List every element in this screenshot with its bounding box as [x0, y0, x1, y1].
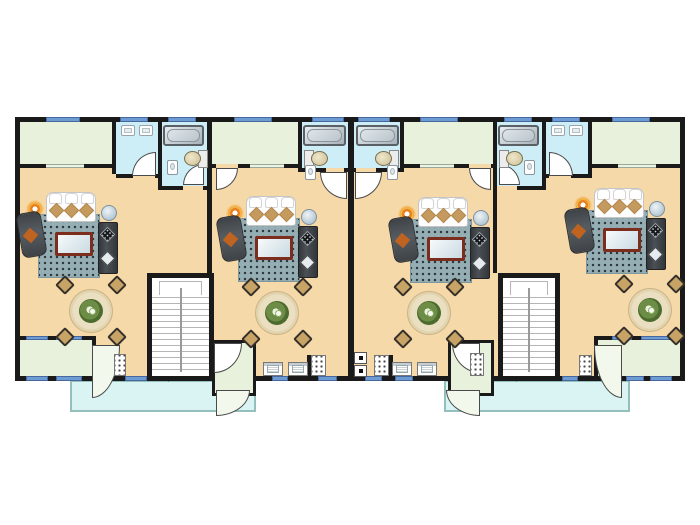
kitchen-appliance-2: [288, 362, 308, 376]
window-4: [312, 117, 344, 122]
pedestal-sink-3: [387, 165, 398, 180]
dining-set-4-c-sw: [614, 326, 634, 346]
door-arc-balcony-3: [446, 390, 480, 416]
wash-basin-3: [551, 125, 565, 136]
bathtub-3: [356, 125, 399, 146]
window-6: [420, 117, 458, 122]
wall-segment-21: [491, 164, 497, 168]
wall-segment-4: [348, 117, 354, 381]
living-set-1-pil3: [81, 193, 94, 204]
window-3: [234, 117, 272, 122]
living-set-4-pil3: [629, 189, 642, 200]
stairwell-1: [147, 273, 214, 381]
dining-set-3: [385, 269, 473, 357]
dining-set-3-c-se: [445, 329, 465, 349]
dining-set-3-c-nw: [393, 277, 413, 297]
living-set-2-pil3: [281, 197, 294, 208]
bathtub-2: [303, 125, 346, 146]
dining-set-4-c-ne: [666, 274, 686, 294]
dining-set-3-plant: [417, 301, 441, 325]
wash-basin-4: [569, 125, 583, 136]
pedestal-sink-2: [305, 165, 316, 180]
stairwell-1-st-mid: [180, 288, 182, 372]
window-15: [562, 376, 578, 381]
dining-set-2-c-nw: [241, 277, 261, 297]
window-22: [626, 376, 644, 381]
wall-segment-23: [517, 186, 546, 190]
toilet-1: [184, 150, 208, 167]
living-set-3-sidetable: [473, 210, 489, 226]
dining-set-2-c-se: [293, 329, 313, 349]
wall-segment-7: [542, 117, 546, 190]
wall-segment-10: [116, 174, 133, 178]
wall-segment-22: [493, 186, 497, 190]
window-2: [168, 117, 196, 122]
sunroom-3: [404, 122, 493, 164]
dining-set-3-c-ne: [445, 277, 465, 297]
dining-set-1: [47, 267, 135, 355]
wall-segment-6: [493, 117, 497, 273]
wall-segment-25: [571, 174, 592, 178]
window-14: [395, 376, 413, 381]
living-set-2-coffee: [255, 236, 293, 260]
dining-set-2-c-ne: [293, 277, 313, 297]
window-8: [552, 117, 580, 122]
window-18: [26, 376, 48, 381]
bathtub-1: [163, 125, 204, 146]
dining-set-4-c-se: [666, 326, 686, 346]
pedestal-sink-1: [167, 160, 178, 175]
stairwell-2: [498, 273, 560, 381]
window-12: [318, 376, 337, 381]
dining-set-2-plant: [265, 301, 289, 325]
utility-panel-bottom: [354, 365, 367, 377]
kitchen-appliance-4: [417, 362, 437, 376]
dining-set-1-c-sw: [55, 327, 75, 347]
window-13: [365, 376, 382, 381]
sunroom-2: [212, 122, 298, 164]
toilet-4: [499, 150, 523, 167]
window-0: [46, 117, 80, 122]
window-1: [120, 117, 148, 122]
wall-segment-2: [207, 117, 212, 273]
living-set-3-coffee: [427, 237, 465, 261]
sunroom-window-0: [46, 164, 84, 168]
dining-set-3-c-sw: [393, 329, 413, 349]
sunroom-window-1: [250, 164, 284, 168]
living-set-1-coffee: [55, 232, 93, 256]
utility-panel-top: [354, 352, 367, 364]
wash-basin-1: [121, 125, 135, 136]
kitchen-appliance-1: [263, 362, 283, 376]
window-9: [612, 117, 650, 122]
window-7: [504, 117, 532, 122]
living-set-2-sidetable: [301, 209, 317, 225]
wash-basin-2: [139, 125, 153, 136]
wall-segment-0: [112, 117, 116, 174]
door-arc-balcony-2: [216, 390, 250, 416]
dining-set-4-plant: [638, 298, 662, 322]
sunroom-window-3: [618, 164, 656, 168]
dining-set-2-c-sw: [241, 329, 261, 349]
living-set-4-sidetable: [649, 201, 665, 217]
kitchen-appliance-3: [392, 362, 412, 376]
sunroom-window-2: [420, 164, 454, 168]
dining-set-1-c-se: [107, 327, 127, 347]
sunroom-4: [592, 122, 680, 164]
window-5: [358, 117, 390, 122]
dining-set-4-c-nw: [614, 274, 634, 294]
living-set-3-pil3: [453, 198, 466, 209]
sunroom-1: [20, 122, 112, 164]
living-set-1-sidetable: [101, 205, 117, 221]
washer-3: [374, 355, 389, 376]
window-16: [26, 336, 48, 340]
boiler-1: [114, 354, 126, 376]
wall-segment-1: [158, 117, 162, 190]
dining-set-2: [233, 269, 321, 357]
dining-set-1-c-nw: [55, 275, 75, 295]
boiler-4: [579, 355, 592, 376]
washer-2: [311, 355, 326, 376]
window-19: [56, 376, 82, 381]
stairwell-2-st-mid: [528, 288, 530, 372]
window-11: [272, 376, 288, 381]
wall-segment-11: [155, 174, 162, 178]
wall-segment-12: [162, 186, 183, 190]
apartment-floor-plan: [0, 0, 700, 525]
dining-set-1-c-ne: [107, 275, 127, 295]
dining-set-4: [606, 266, 694, 354]
bathtub-4: [498, 125, 539, 146]
window-10: [125, 376, 147, 381]
window-23: [650, 376, 672, 381]
living-set-4-coffee: [603, 228, 641, 252]
dining-set-1-plant: [79, 299, 103, 323]
pedestal-sink-4: [524, 160, 535, 175]
wall-segment-13: [203, 186, 212, 190]
